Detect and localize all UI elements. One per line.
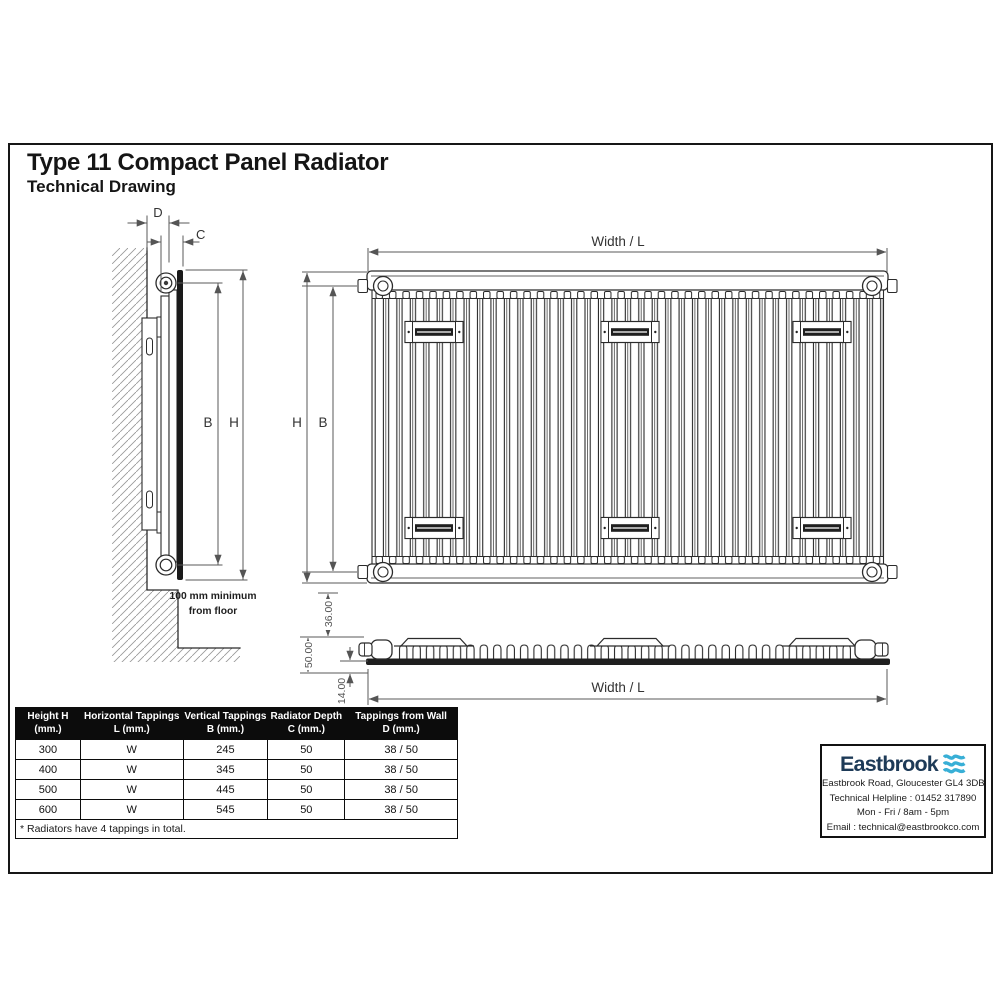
side-tapping-bottom [156, 555, 176, 575]
company-helpline: Technical Helpline : 01452 317890 [822, 792, 984, 807]
dimension-width-front [368, 248, 887, 272]
table-row: 300 W 245 50 38 / 50 [16, 740, 458, 760]
dim-36-label: 36.00 [323, 601, 335, 627]
technical-drawing-page: Type 11 Compact Panel Radiator Technical… [0, 0, 1000, 1000]
table-footnote-row: * Radiators have 4 tappings in total. [16, 820, 458, 839]
dim-14-label: 14.00 [336, 678, 348, 704]
dim-d-label: D [153, 205, 162, 220]
bracket-slot-top [147, 338, 153, 355]
dim-b-front-label: B [318, 415, 327, 430]
bracket [793, 322, 851, 343]
front-view: Width / L H B [292, 234, 897, 583]
plan-tapping-right [855, 640, 888, 659]
dim-b-side-label: B [203, 415, 212, 430]
dim-h-side-label: H [229, 415, 239, 430]
company-email: Email : technical@eastbrookco.com [822, 821, 984, 836]
dimension-b-side [178, 283, 222, 565]
bracket [601, 518, 659, 539]
col-header-vertical-tappings: Vertical TappingsB (mm.) [183, 708, 268, 740]
col-header-tappings-from-wall: Tappings from WallD (mm.) [345, 708, 458, 740]
col-header-radiator-depth: Radiator DepthC (mm.) [268, 708, 345, 740]
table-row: 400 W 345 50 38 / 50 [16, 760, 458, 780]
bottom-rail [367, 564, 888, 583]
table-footnote: * Radiators have 4 tappings in total. [16, 820, 458, 839]
eastbrook-logo-text: Eastbrook [840, 752, 938, 777]
company-info-box: Eastbrook Eastbrook Road, Gloucester GL4… [820, 744, 986, 838]
bracket [793, 518, 851, 539]
company-hours: Mon - Fri / 8am - 5pm [822, 806, 984, 821]
company-address: Eastbrook Road, Gloucester GL4 3DB [822, 777, 984, 792]
table-row: 500 W 445 50 38 / 50 [16, 780, 458, 800]
col-header-horizontal-tappings: Horizontal TappingsL (mm.) [80, 708, 183, 740]
dim-h-front-label: H [292, 415, 302, 430]
bracket [601, 322, 659, 343]
front-panel-plan [366, 659, 890, 666]
table-row: 600 W 545 50 38 / 50 [16, 800, 458, 820]
dimension-h-front [302, 272, 367, 583]
floor-note-line1: 100 mm minimum [170, 591, 257, 602]
top-rail [367, 271, 888, 290]
dim-width-plan-label: Width / L [591, 680, 645, 695]
radiator-technical-drawing: D C B H 100 mm minim [0, 0, 1000, 1000]
bracket [405, 322, 463, 343]
eastbrook-logo: Eastbrook [822, 751, 984, 777]
dimension-b-front [302, 286, 357, 572]
side-view: D C B H 100 mm minim [112, 205, 256, 662]
bracket [405, 518, 463, 539]
col-header-height: Height H(mm.) [16, 708, 81, 740]
side-tapping-top [156, 273, 176, 293]
eastbrook-wave-icon [943, 754, 966, 774]
dim-c-label: C [196, 227, 205, 242]
floor-note-line2: from floor [189, 606, 238, 617]
top-view: 36.00 50.00 14.00 Width / L [300, 593, 890, 705]
side-front-panel [177, 270, 183, 580]
spec-table-header-row: Height H(mm.) Horizontal TappingsL (mm.)… [16, 708, 458, 740]
spec-table: Height H(mm.) Horizontal TappingsL (mm.)… [15, 707, 458, 839]
plan-bracket-bumps [394, 639, 862, 647]
bracket-slot-bottom [147, 491, 153, 508]
side-convector [161, 296, 169, 558]
dim-width-front-label: Width / L [591, 234, 645, 249]
plan-tapping-left [359, 640, 392, 659]
dim-50-label: 50.00 [303, 642, 315, 668]
side-panel [169, 290, 177, 562]
